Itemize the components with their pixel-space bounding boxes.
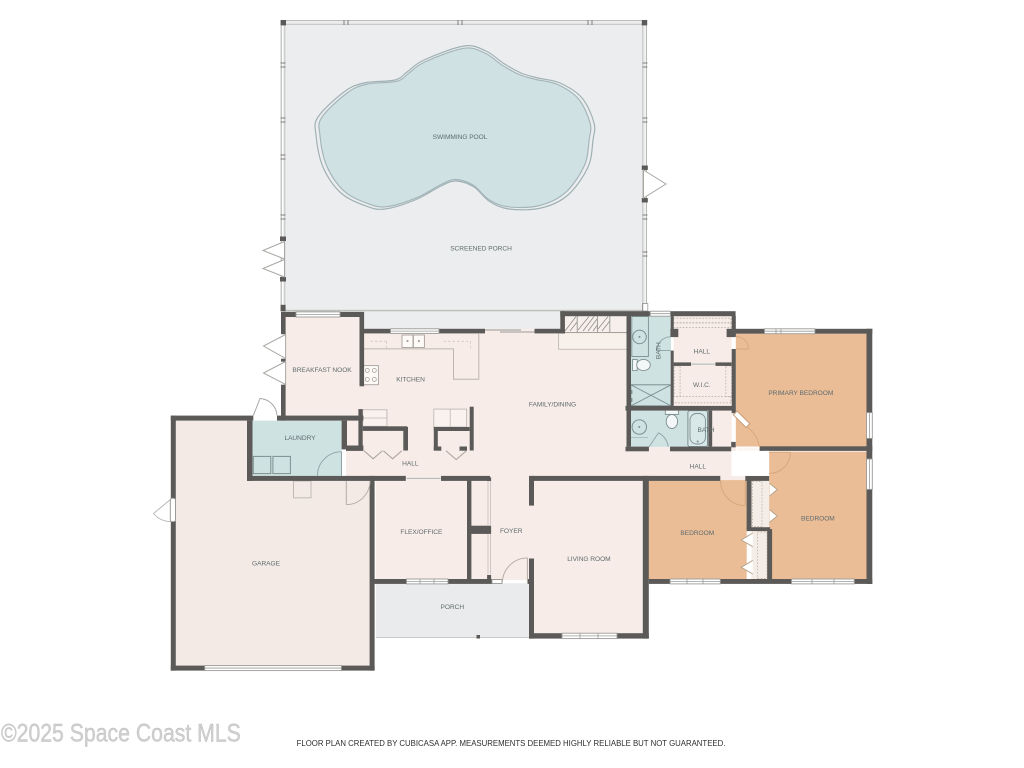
svg-text:SWIMMING POOL: SWIMMING POOL — [433, 134, 488, 141]
svg-text:BATH: BATH — [698, 427, 715, 434]
svg-text:FOYER: FOYER — [500, 528, 523, 535]
svg-text:GARAGE: GARAGE — [252, 561, 281, 568]
svg-text:FAMILY/DINING: FAMILY/DINING — [529, 402, 576, 409]
svg-text:FLOOR PLAN CREATED BY CUBICASA: FLOOR PLAN CREATED BY CUBICASA APP. MEAS… — [297, 739, 726, 748]
svg-text:KITCHEN: KITCHEN — [396, 377, 425, 384]
svg-text:W.I.C.: W.I.C. — [693, 382, 711, 389]
svg-text:HALL: HALL — [402, 461, 419, 468]
svg-text:PORCH: PORCH — [441, 604, 465, 611]
svg-text:BEDROOM: BEDROOM — [801, 516, 835, 523]
svg-text:BREAKFAST NOOK: BREAKFAST NOOK — [292, 367, 352, 374]
svg-text:BEDROOM: BEDROOM — [680, 530, 714, 537]
svg-text:LAUNDRY: LAUNDRY — [284, 435, 316, 442]
svg-text:PRIMARY BEDROOM: PRIMARY BEDROOM — [768, 390, 833, 397]
svg-text:LIVING ROOM: LIVING ROOM — [567, 556, 610, 563]
svg-text:HALL: HALL — [694, 349, 711, 356]
svg-text:BATH: BATH — [656, 342, 663, 359]
svg-text:©2025 Space Coast MLS: ©2025 Space Coast MLS — [1, 719, 241, 747]
svg-text:SCREENED PORCH: SCREENED PORCH — [450, 246, 512, 253]
svg-text:HALL: HALL — [690, 464, 707, 471]
svg-text:FLEX/OFFICE: FLEX/OFFICE — [400, 529, 443, 536]
